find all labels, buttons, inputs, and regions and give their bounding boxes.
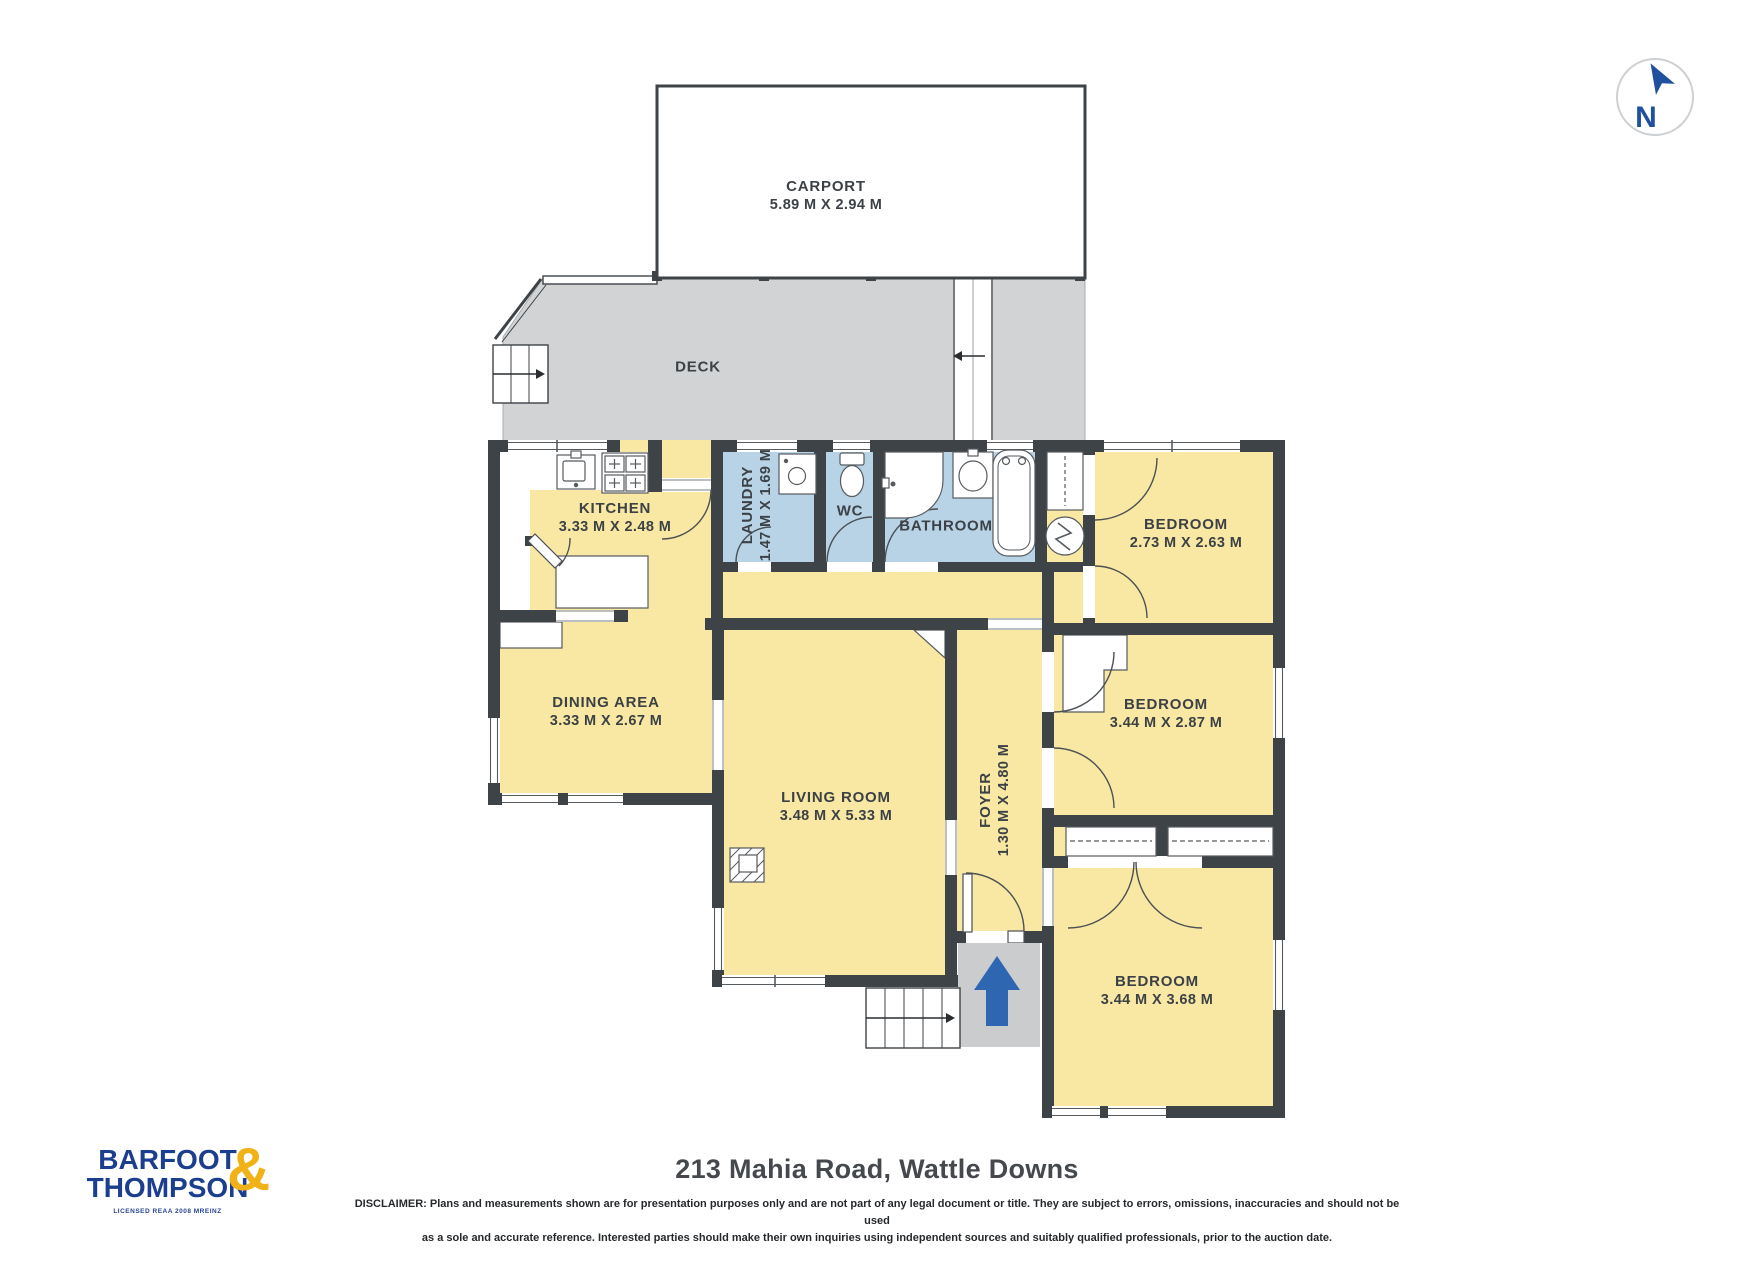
page-title: 213 Mahia Road, Wattle Downs [675,1154,1078,1185]
room-label-dining: DINING AREA 3.33 M X 2.67 M [550,693,662,731]
floor-plan-page: N CARPORT 5.89 M X 2.94 M DECK KITCHEN 3… [0,0,1754,1280]
room-label-carport: CARPORT 5.89 M X 2.94 M [770,177,882,215]
deck-walkway [953,278,993,446]
disclaimer-text: DISCLAIMER: Plans and measurements shown… [347,1196,1407,1247]
closet-icons [1066,827,1273,856]
room-label-living: LIVING ROOM 3.48 M X 5.33 M [780,788,892,826]
toilet-icon [840,453,864,497]
laundry-tub-icon [779,454,816,494]
room-label-deck: DECK [675,358,721,377]
logo-license-text: LICENSED REAA 2008 MREINZ [85,1208,250,1215]
logo-ampersand: & [227,1140,270,1200]
bathtub-icon [993,450,1035,556]
room-label-bedroom3: BEDROOM 3.44 M X 3.68 M [1101,972,1213,1010]
hot-water-cylinder-icon [1046,452,1084,555]
stove-icon [602,453,648,493]
room-label-bathroom: BATHROOM [899,517,993,536]
deck-stairs-icon [493,345,548,403]
kitchen-sink-icon [557,451,595,489]
room-label-laundry: LAUNDRY 1.47 M X 1.69 M [738,449,776,561]
kitchen-bench [556,556,648,608]
compass-north-label: N [1635,101,1657,134]
compass: N [1617,58,1693,135]
dining-buffet [500,622,562,648]
room-label-foyer: FOYER 1.30 M X 4.80 M [976,744,1014,856]
entry-stairs-icon [866,988,960,1048]
room-label-kitchen: KITCHEN 3.33 M X 2.48 M [559,499,671,537]
room-label-wc: WC [837,502,864,521]
barfoot-thompson-logo: BARFOOT THOMPSON & LICENSED REAA 2008 MR… [85,1146,250,1215]
room-label-bedroom1: BEDROOM 2.73 M X 2.63 M [1130,515,1242,553]
fireplace-icon [730,848,764,882]
bathroom-sink-icon [953,449,993,498]
room-label-bedroom2: BEDROOM 3.44 M X 2.87 M [1110,695,1222,733]
